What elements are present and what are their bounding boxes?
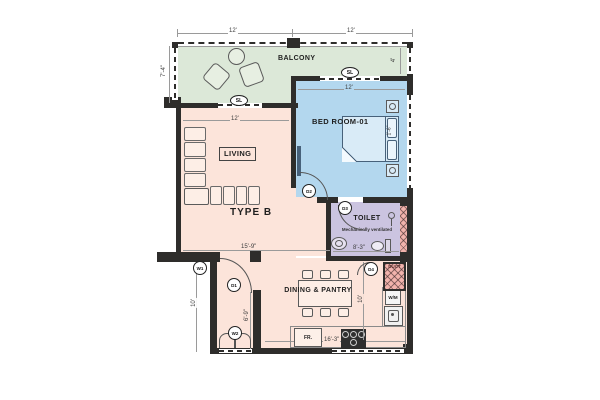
dining-label: DINING & PANTRY	[270, 287, 366, 294]
door-marker-d4: D4	[364, 262, 378, 276]
wall-corridor-left	[210, 255, 217, 354]
dining-chair	[320, 270, 331, 279]
window-kitchen-opening	[332, 349, 404, 353]
washbasin-inner	[335, 240, 343, 247]
living-label: LIVING	[219, 147, 256, 161]
wall-living-bedroom	[291, 78, 296, 188]
dining-chair	[302, 308, 313, 317]
dim-toilet-width: 8'-3"	[352, 245, 366, 251]
d3-label: D3	[342, 206, 348, 211]
nightstand-2	[386, 164, 399, 177]
dimtick	[292, 29, 293, 37]
dimtick	[177, 29, 178, 37]
dimline-living-length	[183, 250, 330, 251]
dim-kitchen-width: 16'-3"	[323, 337, 340, 343]
window-w2-opening	[219, 349, 252, 353]
duct-label: DUCT	[388, 264, 401, 269]
washing-machine: W/M	[385, 290, 401, 305]
sofa-corner	[184, 188, 209, 205]
dimline-balcony-left	[169, 46, 170, 103]
kitchen-sink-basin	[388, 310, 399, 322]
dim-top-right: 12'	[346, 28, 356, 34]
dining-chair	[320, 308, 331, 317]
dim-inner-wall: 6'-9"	[244, 308, 250, 322]
burner-icon	[342, 331, 349, 338]
sink-faucet-icon	[391, 313, 394, 316]
wall-block-ne-toilet	[400, 197, 413, 206]
lamp-icon	[389, 103, 396, 110]
sliding-door-marker-sl1: SL	[230, 95, 248, 106]
dim-balcony-right: 4'	[391, 57, 397, 63]
wall-living-left	[176, 103, 181, 255]
d4-label: D4	[368, 267, 374, 272]
balcony-label: BALCONY	[278, 55, 315, 62]
w1-label: W1	[197, 266, 204, 271]
floorplan-canvas: FR. W/M DUCT BALCONY BED ROOM-01 LIVING …	[0, 0, 600, 400]
window-marker-w1: W1	[193, 261, 207, 275]
door-marker-d1: D1	[227, 278, 241, 292]
dining-chair	[338, 308, 349, 317]
door-marker-d3: D3	[338, 201, 352, 215]
dimline-balcony-right	[400, 48, 401, 74]
dining-chair	[338, 270, 349, 279]
d2-label: D2	[306, 189, 312, 194]
dim-bedroom-width: 12'	[344, 85, 354, 91]
sl-label: SL	[347, 70, 353, 76]
sliding-door-marker-sl2: SL	[341, 67, 359, 78]
dim-balcony-left: 7'-4"	[161, 64, 167, 78]
lamp-icon	[389, 167, 396, 174]
sofa-vertical	[184, 127, 206, 187]
fridge-label: FR.	[304, 335, 312, 341]
toilet-note: Mechanically ventilated	[331, 227, 403, 232]
w2-label: W2	[232, 331, 239, 336]
window-balcony-right	[407, 48, 413, 74]
duct-box: DUCT	[383, 262, 406, 291]
unit-type-label: TYPE B	[230, 208, 272, 218]
burner-icon	[350, 331, 357, 338]
wall-balcony-bedroom-b	[380, 76, 413, 81]
window-marker-w2: W2	[228, 326, 242, 340]
dim-living-width: 12'	[230, 116, 240, 122]
window-bedroom-right	[407, 95, 413, 188]
dining-chair	[302, 270, 313, 279]
bed-headboard-line	[385, 116, 386, 162]
wall-block-se-toilet	[400, 252, 413, 262]
wall-entry-jamb	[250, 250, 261, 262]
balcony-table	[228, 48, 245, 65]
d1-label: D1	[231, 283, 237, 288]
wall-inner-dining	[253, 290, 261, 352]
fridge: FR.	[294, 328, 322, 347]
door-marker-d2: D2	[302, 184, 316, 198]
dim-top-left: 12'	[228, 28, 238, 34]
bedroom-label: BED ROOM-01	[312, 118, 369, 126]
dim-bed-head: 1'-6"	[387, 125, 392, 137]
window-balcony-left	[172, 48, 178, 100]
dimtick	[412, 29, 413, 37]
washing-machine-label: W/M	[388, 295, 397, 300]
dimline-toilet-width	[333, 251, 399, 252]
burner-icon	[350, 339, 357, 346]
sl-label: SL	[236, 98, 242, 104]
sliding-door-sl2-opening	[320, 78, 380, 80]
dim-living-length: 15'-9"	[240, 244, 257, 250]
sofa-horizontal	[210, 186, 260, 205]
bed-blanket-fold	[342, 147, 357, 162]
dim-dining-height: 10'	[358, 294, 364, 304]
dim-corridor-height: 10'	[191, 298, 197, 308]
nightstand-1	[386, 100, 399, 113]
bed-pillow-2	[387, 140, 397, 160]
wall-pillar-top	[287, 38, 300, 48]
wc-bowl	[371, 241, 384, 251]
